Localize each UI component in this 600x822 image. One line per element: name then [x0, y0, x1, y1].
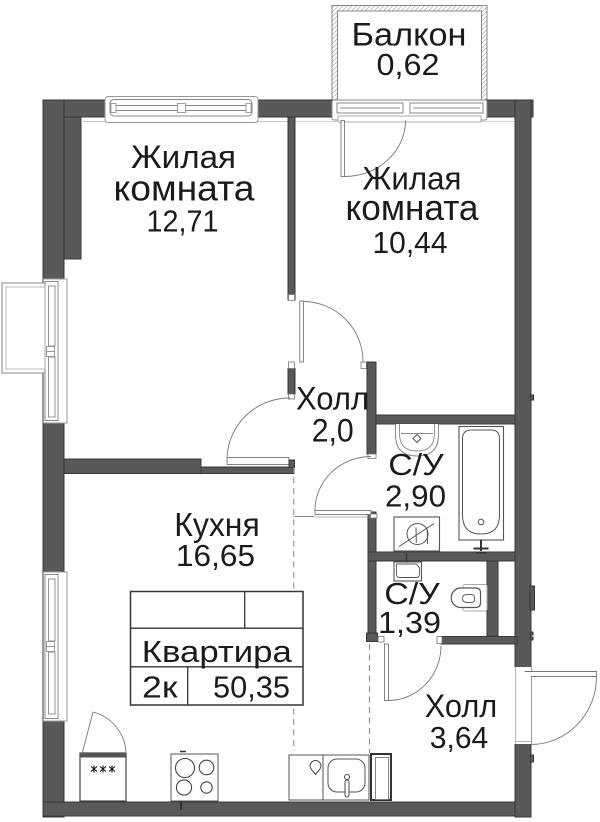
svg-text:16,65: 16,65 [176, 538, 255, 573]
svg-text:Холл: Холл [296, 381, 369, 417]
svg-text:С/У: С/У [388, 447, 444, 482]
svg-text:2к: 2к [142, 670, 178, 705]
svg-text:1,39: 1,39 [378, 605, 441, 640]
svg-text:комната: комната [114, 168, 256, 209]
svg-text:50,35: 50,35 [213, 670, 290, 705]
svg-text:2,0: 2,0 [312, 413, 354, 449]
svg-text:комната: комната [346, 187, 480, 228]
svg-text:0,62: 0,62 [377, 47, 440, 82]
svg-text:3,64: 3,64 [430, 720, 489, 755]
svg-text:10,44: 10,44 [373, 225, 448, 260]
svg-text:Холл: Холл [425, 688, 498, 724]
svg-text:2,90: 2,90 [385, 479, 446, 514]
svg-text:Квартира: Квартира [142, 634, 293, 669]
svg-text:12,71: 12,71 [147, 204, 219, 239]
